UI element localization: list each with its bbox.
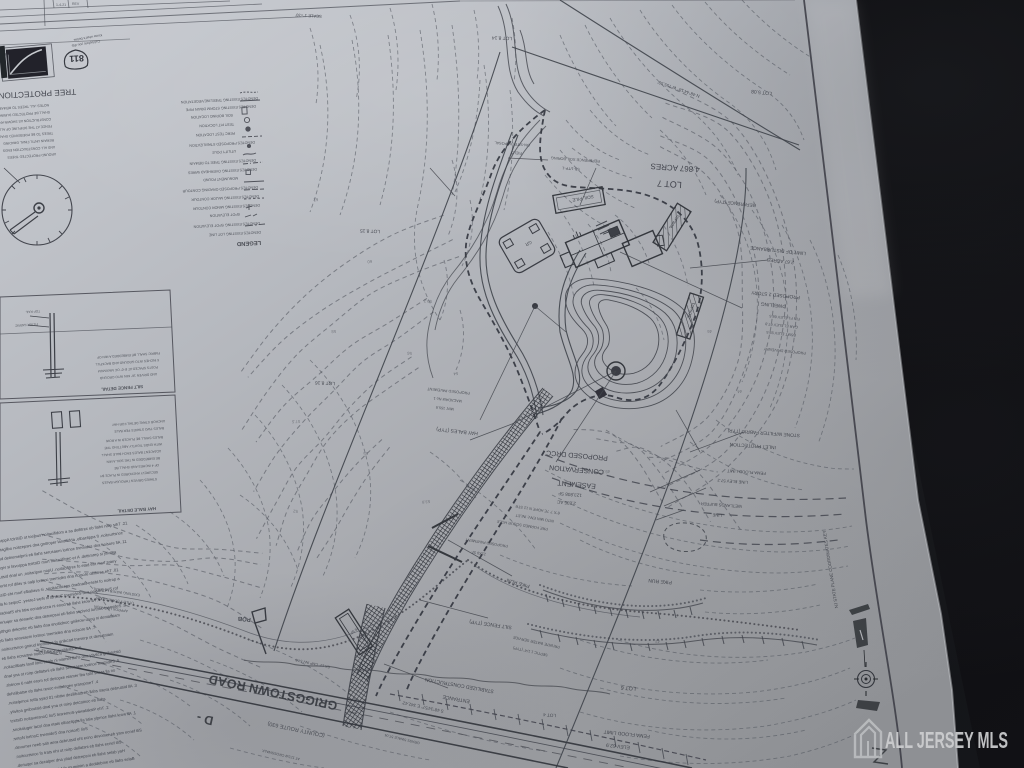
- svg-text:LEGEND: LEGEND: [237, 239, 261, 246]
- svg-text:LOT 6: LOT 6: [621, 684, 637, 691]
- svg-text:REV: REV: [72, 2, 80, 6]
- svg-text:811: 811: [69, 53, 84, 64]
- svg-text:LOT 8.14: LOT 8.14: [492, 34, 512, 41]
- svg-text:46: 46: [707, 329, 712, 334]
- svg-text:53.8: 53.8: [421, 499, 430, 505]
- svg-text:59.2: 59.2: [423, 299, 432, 304]
- svg-text:55: 55: [363, 451, 369, 456]
- svg-text:FIELD: FIELD: [511, 150, 522, 155]
- svg-text:LINE: LINE: [712, 512, 722, 518]
- svg-text:LOT 8.16: LOT 8.16: [315, 379, 335, 386]
- svg-text:57.5: 57.5: [291, 419, 300, 424]
- svg-text:LOT 8.15: LOT 8.15: [360, 227, 380, 234]
- svg-text:ALL JERSEY MLS: ALL JERSEY MLS: [885, 727, 1008, 753]
- svg-text:1-4-21: 1-4-21: [56, 3, 66, 7]
- svg-text:LOT 4: LOT 4: [543, 712, 556, 718]
- svg-text:LOT 7: LOT 7: [657, 178, 682, 190]
